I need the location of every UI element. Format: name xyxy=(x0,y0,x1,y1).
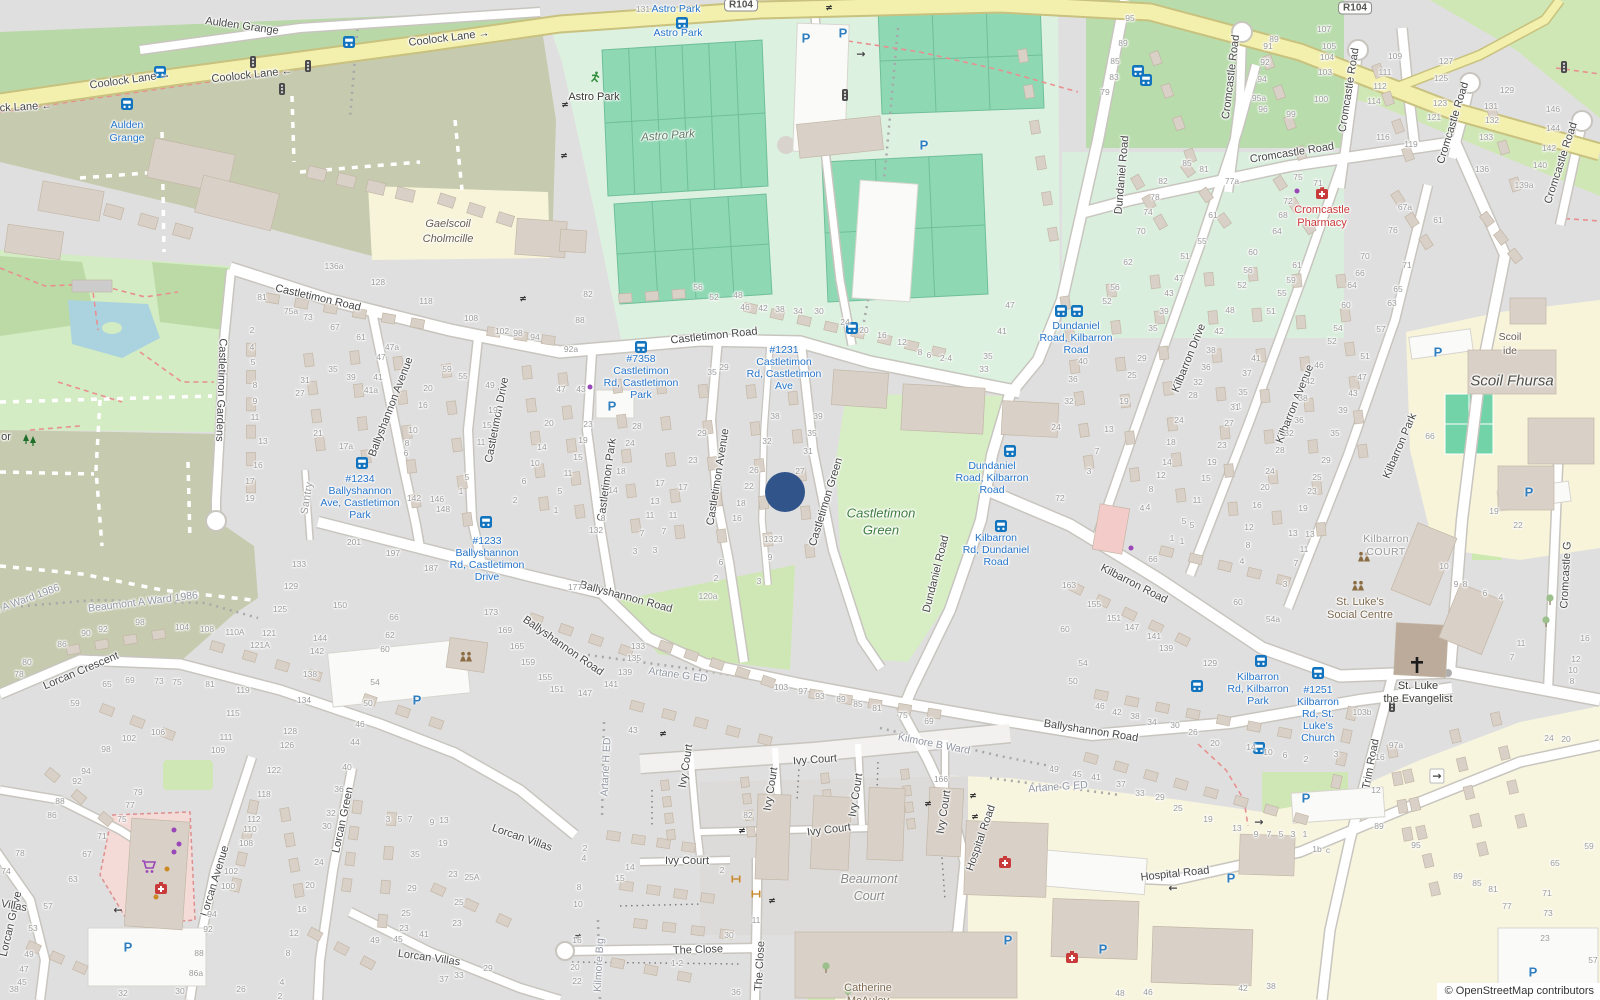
osm-link[interactable]: OpenStreetMap xyxy=(1456,985,1534,997)
location-marker[interactable] xyxy=(765,472,805,512)
map-attribution[interactable]: © OpenStreetMap contributors xyxy=(1437,983,1600,1000)
contributors-text: contributors xyxy=(1537,985,1594,997)
copyright-symbol: © xyxy=(1445,985,1453,997)
map-viewport[interactable]: PPPPPPPPPPPPP≠≠≠≠≠≠≠≠≠≠≠←←→→→ Aulden Gra… xyxy=(0,0,1600,1000)
